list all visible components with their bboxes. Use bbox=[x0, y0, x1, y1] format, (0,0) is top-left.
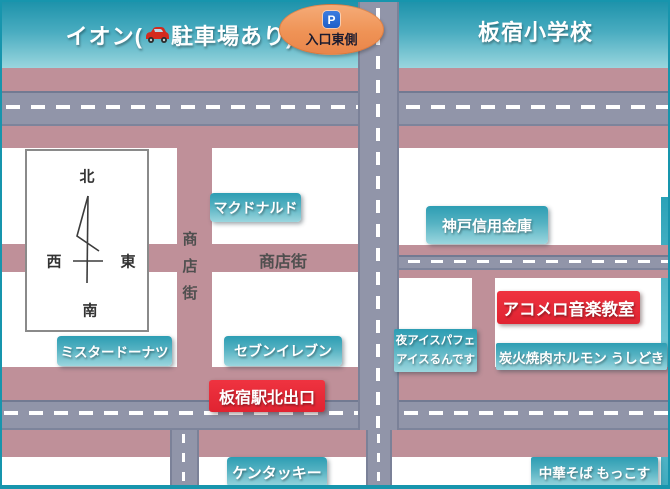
destination-acomelo-music-school: アコメロ音楽教室 bbox=[497, 291, 640, 324]
road-right-centerline bbox=[362, 260, 670, 263]
road-bottom-main bbox=[2, 400, 670, 430]
road-bottom-left-centerline bbox=[182, 434, 185, 485]
road-top-mauve-upper bbox=[2, 68, 670, 91]
road-bottom-center-centerline bbox=[377, 434, 380, 485]
access-map: イオン( 駐車場あり) 板宿小学校 北 西 東 南 商店街 商 店 街 マクド bbox=[0, 0, 670, 489]
place-yakiniku-ushidoki: 炭火焼肉ホルモン うしどき bbox=[496, 343, 667, 370]
place-seven-eleven: セブンイレブン bbox=[224, 336, 342, 366]
ion-title-suffix: 駐車場あり) bbox=[171, 19, 294, 51]
school-title: 板宿小学校 bbox=[478, 15, 593, 47]
ion-title: イオン( 駐車場あり) bbox=[66, 19, 295, 51]
place-night-ice: 夜アイスパフェ アイスるんです bbox=[394, 329, 477, 372]
road-bottom-mauve-lower bbox=[2, 430, 670, 457]
compass-needle-icon bbox=[27, 151, 147, 330]
road-top-centerline bbox=[6, 105, 668, 109]
ion-title-prefix: イオン( bbox=[66, 19, 143, 51]
parking-icon: P bbox=[323, 11, 340, 28]
shotengai-vertical-label: 商 店 街 bbox=[181, 228, 199, 303]
building-school: 板宿小学校 bbox=[399, 2, 670, 68]
road-central-centerline bbox=[376, 8, 380, 428]
place-mokkosu: 中華そば もっこす bbox=[531, 457, 658, 487]
shotengai-horizontal-label: 商店街 bbox=[252, 248, 314, 272]
place-mister-donut: ミスタードーナツ bbox=[57, 336, 172, 366]
road-bottom-centerline bbox=[4, 411, 670, 415]
car-icon bbox=[144, 26, 170, 44]
place-mcdonalds: マクドナルド bbox=[210, 193, 301, 222]
place-kfc: ケンタッキー bbox=[227, 457, 327, 487]
parking-entrance-badge: P 入口東側 bbox=[279, 4, 384, 55]
road-bottom-mauve-upper bbox=[2, 367, 670, 400]
road-top-mauve-lower bbox=[2, 126, 670, 148]
compass-box: 北 西 東 南 bbox=[25, 149, 149, 332]
landmark-station-north-exit: 板宿駅北出口 bbox=[209, 380, 325, 412]
parking-entrance-label: 入口東側 bbox=[305, 29, 357, 48]
place-kobe-shinkin-bank: 神戸信用金庫 bbox=[426, 206, 548, 244]
